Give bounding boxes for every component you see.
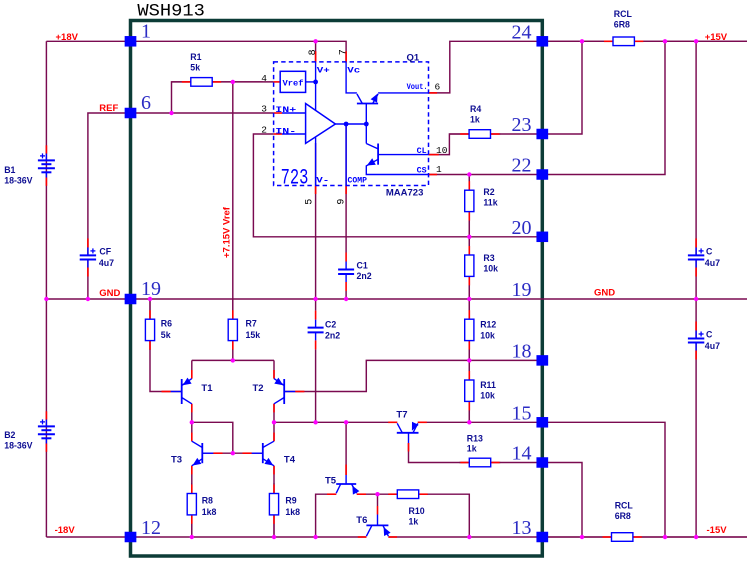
svg-text:10k: 10k [483,263,498,273]
svg-text:R12: R12 [480,320,496,330]
svg-text:8: 8 [308,49,319,55]
svg-text:23: 23 [512,114,532,136]
svg-text:6: 6 [141,92,151,114]
svg-text:COMP: COMP [348,177,368,185]
svg-text:4: 4 [261,73,267,84]
svg-text:15k: 15k [246,330,261,340]
svg-text:22: 22 [512,155,532,177]
svg-text:CL: CL [417,148,427,156]
svg-text:4u7: 4u7 [705,341,720,351]
svg-text:T1: T1 [201,383,213,394]
svg-text:R8: R8 [202,496,213,506]
svg-text:+15V: +15V [705,32,728,43]
svg-text:R3: R3 [483,253,494,263]
svg-text:IN-: IN- [275,128,296,136]
svg-text:GND: GND [594,287,615,298]
svg-text:7: 7 [339,49,350,55]
svg-text:18-36V: 18-36V [4,175,32,185]
svg-text:2n2: 2n2 [325,331,340,341]
svg-text:1k: 1k [409,517,419,527]
svg-text:R11: R11 [480,380,496,390]
svg-text:CF: CF [99,246,111,256]
svg-text:6R8: 6R8 [614,20,630,30]
svg-text:12: 12 [141,517,161,539]
svg-text:T2: T2 [253,383,264,394]
svg-text:MAA723: MAA723 [386,188,424,199]
svg-text:T3: T3 [171,455,182,466]
svg-text:19: 19 [512,279,532,301]
svg-text:Q1: Q1 [407,53,420,64]
svg-text:5: 5 [305,199,316,205]
svg-text:10k: 10k [480,330,495,340]
svg-text:2n2: 2n2 [357,271,372,281]
svg-text:4u7: 4u7 [705,258,720,268]
svg-text:Vc: Vc [347,67,360,75]
svg-text:19: 19 [141,278,161,300]
svg-text:C: C [706,246,713,256]
svg-text:20: 20 [512,217,532,239]
svg-text:T4: T4 [284,455,296,466]
svg-text:R1: R1 [190,52,201,62]
svg-text:Vref: Vref [283,81,304,89]
svg-text:R6: R6 [161,319,172,329]
svg-text:9: 9 [337,199,348,205]
svg-text:T5: T5 [325,475,337,486]
svg-text:T7: T7 [396,410,407,421]
svg-text:-15V: -15V [707,525,728,536]
svg-text:IN+: IN+ [275,107,296,115]
svg-text:5k: 5k [190,62,200,72]
svg-text:1k8: 1k8 [285,507,300,517]
svg-text:723: 723 [281,166,309,191]
svg-text:5k: 5k [161,330,171,340]
svg-text:1: 1 [141,21,151,43]
svg-text:15: 15 [512,403,532,425]
svg-text:R10: R10 [409,506,425,516]
svg-text:1k: 1k [470,114,480,124]
svg-text:6R8: 6R8 [615,511,631,521]
svg-text:GND: GND [99,288,120,299]
svg-text:10: 10 [436,145,448,156]
svg-text:4u7: 4u7 [99,258,114,268]
svg-text:WSH913: WSH913 [137,2,205,22]
svg-text:CS: CS [417,167,427,175]
svg-text:R7: R7 [246,319,257,329]
svg-text:C1: C1 [357,260,368,270]
svg-text:3: 3 [261,104,267,115]
svg-text:1k: 1k [467,443,477,453]
svg-text:10k: 10k [480,391,495,401]
svg-text:1: 1 [436,164,442,175]
svg-text:1k8: 1k8 [202,507,217,517]
svg-text:B2: B2 [4,430,15,440]
svg-text:18: 18 [512,341,532,363]
svg-text:RCL: RCL [614,9,633,19]
svg-text:RCL: RCL [615,500,634,510]
svg-text:V-: V- [316,177,329,185]
svg-text:R2: R2 [483,187,494,197]
svg-text:14: 14 [512,443,532,465]
svg-text:6: 6 [435,81,441,92]
svg-text:R13: R13 [467,433,483,443]
svg-text:V+: V+ [317,67,330,75]
svg-text:2: 2 [261,125,267,136]
svg-text:C2: C2 [325,320,336,330]
svg-text:R9: R9 [285,496,296,506]
svg-text:13: 13 [512,517,532,539]
svg-text:18-36V: 18-36V [4,440,32,450]
svg-text:B1: B1 [4,165,15,175]
svg-text:+18V: +18V [56,32,79,43]
svg-text:11k: 11k [483,197,497,207]
svg-text:R4: R4 [470,104,481,114]
svg-text:+7.15V Vref: +7.15V Vref [222,206,233,258]
svg-text:24: 24 [512,22,532,44]
svg-text:Vout.: Vout. [407,84,428,92]
svg-text:C: C [706,329,713,339]
svg-text:T6: T6 [356,515,367,526]
svg-text:-18V: -18V [55,525,76,536]
svg-text:REF: REF [99,103,118,114]
